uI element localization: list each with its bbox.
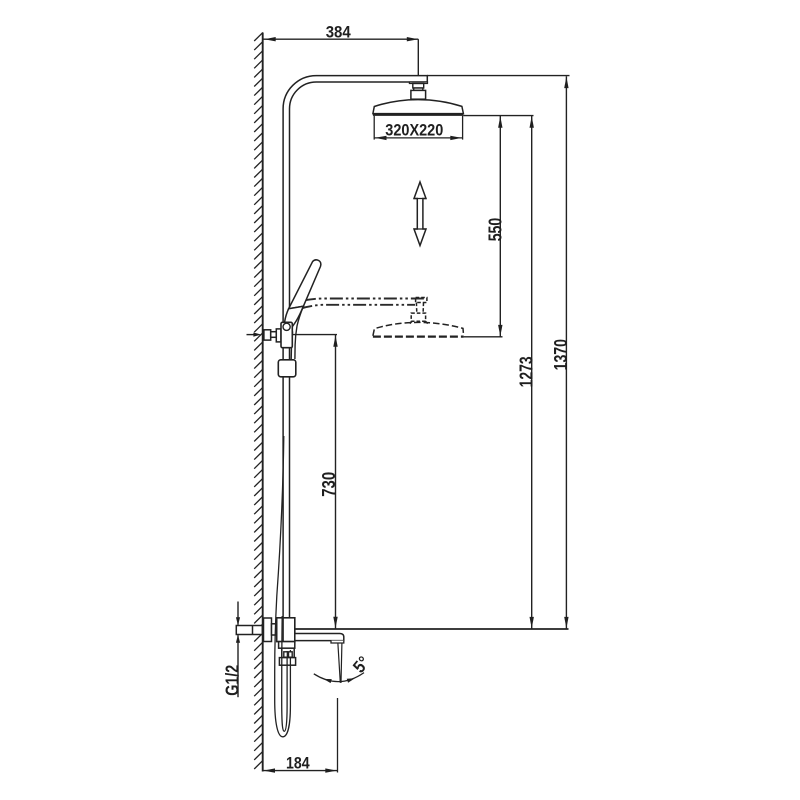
- svg-text:320X220: 320X220: [385, 121, 443, 140]
- svg-text:1370: 1370: [550, 339, 571, 370]
- svg-text:384: 384: [326, 22, 351, 41]
- svg-text:550: 550: [484, 218, 505, 242]
- svg-text:1273: 1273: [515, 356, 536, 387]
- svg-text:G1/2: G1/2: [221, 665, 242, 696]
- svg-text:184: 184: [286, 754, 310, 773]
- svg-text:730: 730: [318, 472, 339, 497]
